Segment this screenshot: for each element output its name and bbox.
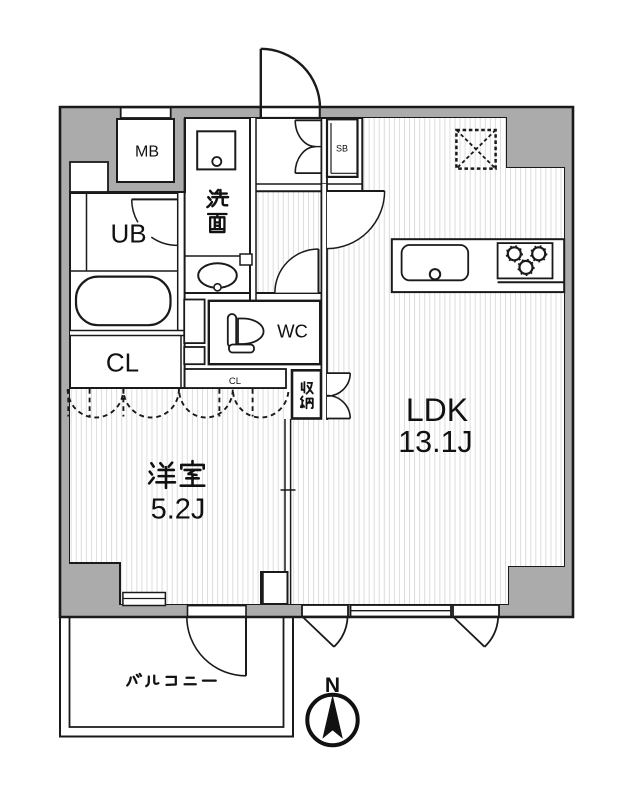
- svg-text:MB: MB: [135, 144, 159, 161]
- svg-text:CL: CL: [229, 376, 241, 387]
- svg-text:13.1J: 13.1J: [398, 425, 473, 459]
- svg-text:N: N: [325, 674, 340, 697]
- svg-text:WC: WC: [277, 321, 308, 342]
- svg-text:LDK: LDK: [406, 392, 468, 428]
- svg-text:UB: UB: [110, 219, 146, 249]
- svg-text:5.2J: 5.2J: [151, 494, 206, 526]
- svg-text:CL: CL: [106, 348, 139, 378]
- svg-text:SB: SB: [336, 144, 348, 154]
